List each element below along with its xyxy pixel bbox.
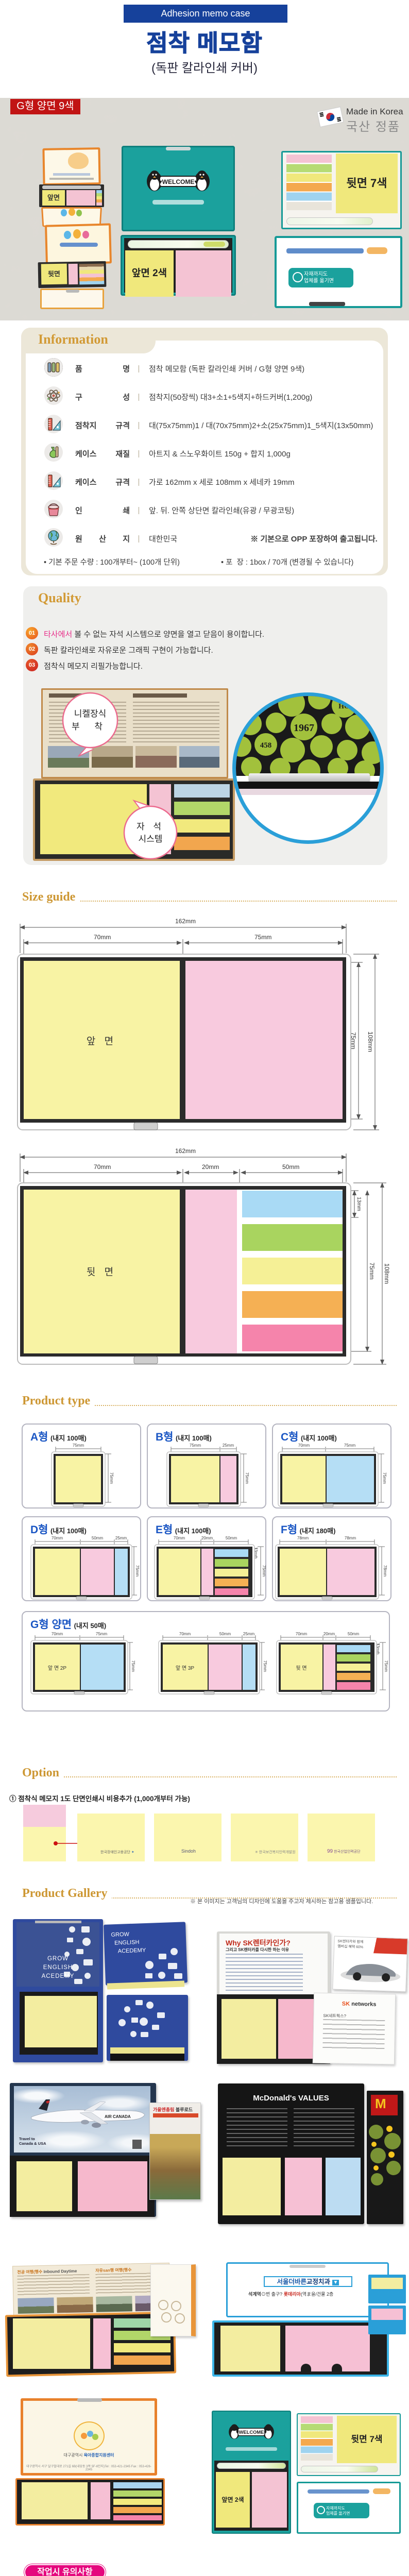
- svg-text:70mm: 70mm: [94, 934, 111, 941]
- svg-text:75mm: 75mm: [262, 1565, 266, 1577]
- svg-text:HO: HO: [338, 703, 350, 710]
- svg-text:75mm: 75mm: [245, 1472, 249, 1484]
- svg-text:75mm: 75mm: [135, 1565, 140, 1577]
- svg-text:75mm: 75mm: [109, 1472, 114, 1484]
- svg-text:75mm: 75mm: [263, 1660, 267, 1672]
- svg-text:70mm: 70mm: [298, 1443, 310, 1448]
- svg-text:뒷 면: 뒷 면: [296, 1665, 306, 1671]
- svg-text:162mm: 162mm: [175, 918, 196, 925]
- svg-text:20mm: 20mm: [323, 1632, 335, 1636]
- svg-text:78mm: 78mm: [383, 1565, 387, 1577]
- svg-text:25mm: 25mm: [115, 1536, 127, 1540]
- svg-text:60: 60: [239, 699, 246, 707]
- svg-text:70mm: 70mm: [296, 1632, 308, 1636]
- svg-text:162mm: 162mm: [175, 1147, 196, 1155]
- svg-text:458: 458: [260, 741, 272, 750]
- svg-text:75mm: 75mm: [368, 1262, 376, 1279]
- svg-text:♥WELCOME♥: ♥WELCOME♥: [236, 2430, 267, 2435]
- svg-text:75mm: 75mm: [96, 1632, 108, 1636]
- svg-text:70mm: 70mm: [52, 1536, 63, 1540]
- svg-text:AIR CANADA: AIR CANADA: [105, 2114, 131, 2119]
- svg-text:78mm: 78mm: [297, 1536, 309, 1540]
- svg-text:78mm: 78mm: [345, 1536, 356, 1540]
- svg-text:75mm: 75mm: [73, 1443, 84, 1448]
- svg-text:시스템: 시스템: [139, 834, 163, 844]
- svg-text:뒷 면: 뒷 면: [87, 1266, 116, 1278]
- svg-text:20mm: 20mm: [202, 1163, 219, 1171]
- svg-text:108mm: 108mm: [367, 1031, 374, 1052]
- svg-text:앞 면: 앞 면: [87, 1036, 116, 1047]
- svg-text:75mm: 75mm: [384, 1660, 388, 1672]
- svg-text:70mm: 70mm: [94, 1163, 111, 1171]
- svg-text:50mm: 50mm: [282, 1163, 299, 1171]
- svg-text:♥WELCOME♥: ♥WELCOME♥: [159, 178, 198, 185]
- svg-text:1967: 1967: [294, 722, 314, 734]
- svg-text:108mm: 108mm: [383, 1263, 390, 1284]
- svg-text:20mm: 20mm: [201, 1536, 213, 1540]
- svg-text:75mm: 75mm: [382, 1472, 387, 1484]
- svg-text:75mm: 75mm: [190, 1443, 201, 1448]
- svg-text:25mm: 25mm: [243, 1632, 255, 1636]
- svg-text:50mm: 50mm: [92, 1536, 104, 1540]
- svg-text:앞 면 3P: 앞 면 3P: [176, 1665, 195, 1671]
- svg-text:70mm: 70mm: [179, 1632, 191, 1636]
- svg-text:50mm: 50mm: [226, 1536, 237, 1540]
- svg-text:앞 면 2P: 앞 면 2P: [48, 1665, 67, 1671]
- svg-text:70mm: 70mm: [174, 1536, 185, 1540]
- svg-text:니켈장식: 니켈장식: [74, 709, 107, 719]
- svg-text:75mm: 75mm: [131, 1660, 135, 1672]
- svg-text:75mm: 75mm: [344, 1443, 356, 1448]
- svg-text:13mm: 13mm: [356, 1197, 362, 1211]
- svg-text:부 착: 부 착: [72, 722, 109, 732]
- svg-text:75mm: 75mm: [254, 934, 271, 941]
- svg-text:자 석: 자 석: [137, 822, 164, 832]
- svg-text:25mm: 25mm: [223, 1443, 234, 1448]
- svg-text:50mm: 50mm: [348, 1632, 360, 1636]
- svg-text:70mm: 70mm: [52, 1632, 63, 1636]
- svg-text:50mm: 50mm: [219, 1632, 231, 1636]
